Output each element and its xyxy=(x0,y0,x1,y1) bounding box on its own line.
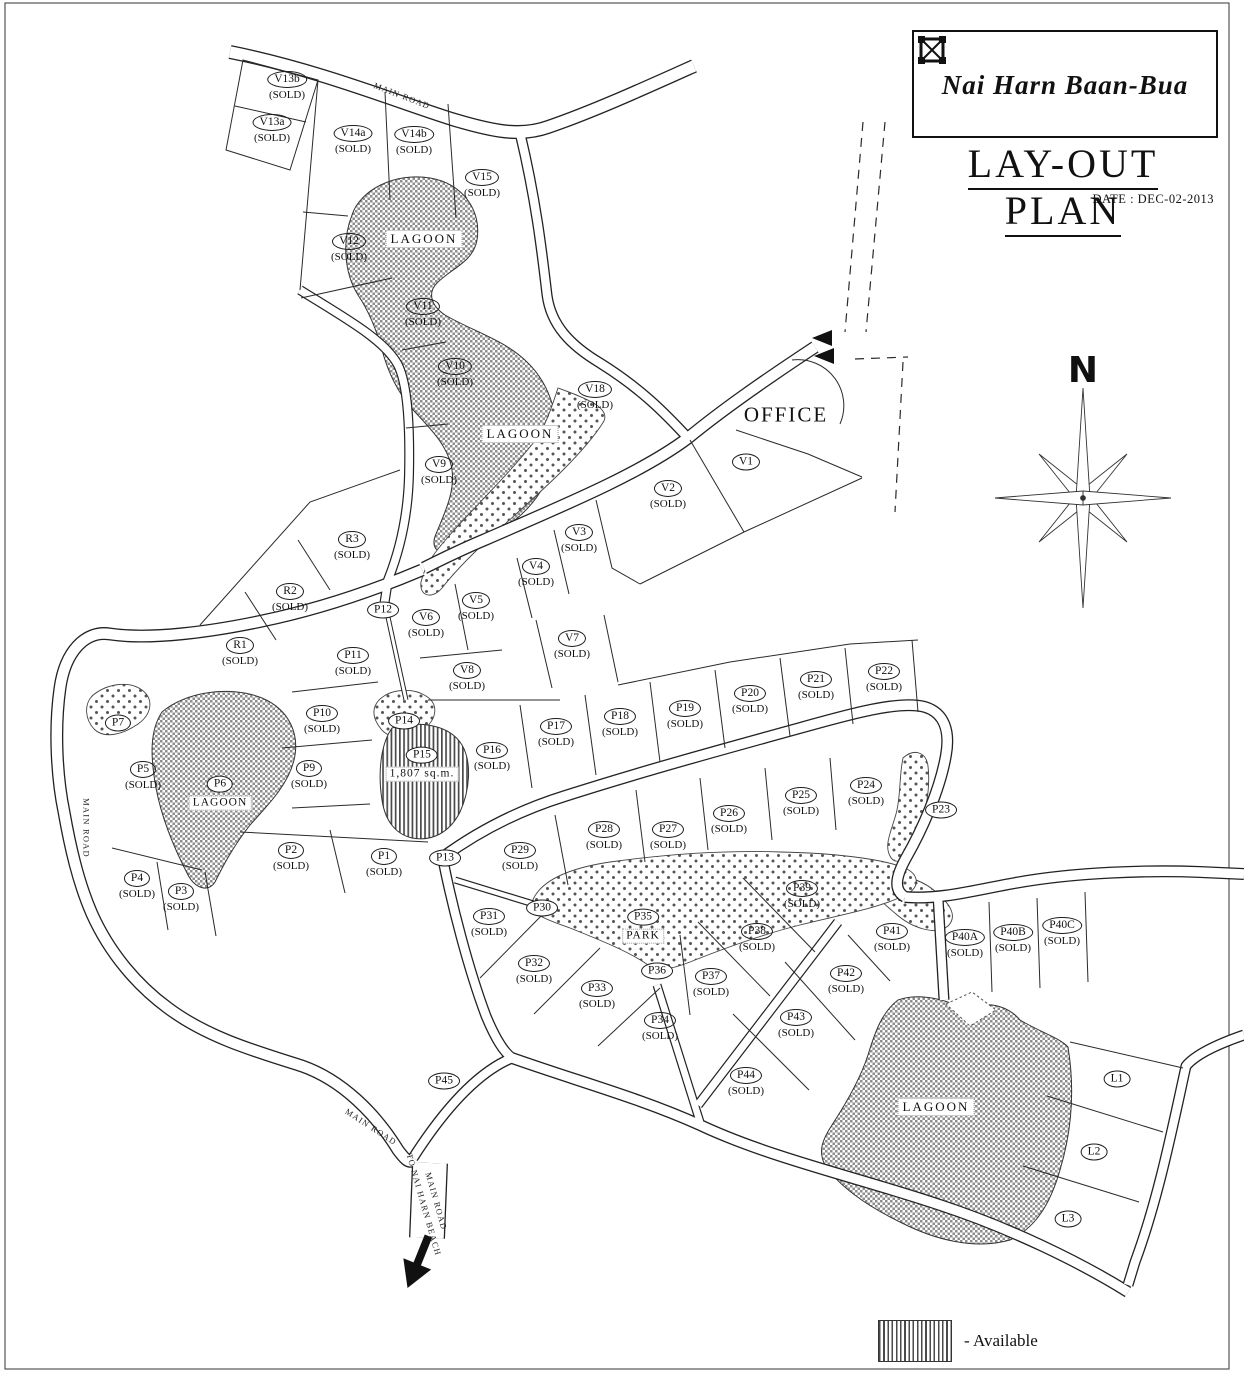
plot-id: P41 xyxy=(876,923,908,940)
area-label-0: LAGOON xyxy=(386,230,463,248)
plot-status: (SOLD) xyxy=(602,726,638,738)
plot-status: (SOLD) xyxy=(449,680,485,692)
page-title: LAY-OUT PLAN xyxy=(968,141,1159,237)
plot-label-P2: P2(SOLD) xyxy=(273,840,309,872)
plot-id: R2 xyxy=(276,583,303,600)
plot-label-P10: P10(SOLD) xyxy=(304,703,340,735)
plot-id: P45 xyxy=(428,1073,460,1090)
plot-status: (SOLD) xyxy=(119,888,155,900)
plot-id: P34 xyxy=(644,1012,676,1029)
plot-id: P21 xyxy=(800,671,832,688)
plot-status: (SOLD) xyxy=(267,89,307,101)
plot-id: P10 xyxy=(306,705,338,722)
plot-status: (SOLD) xyxy=(728,1085,764,1097)
plot-label-V14b: V14b(SOLD) xyxy=(394,124,434,156)
plot-label-V13a: V13a(SOLD) xyxy=(253,112,292,144)
plot-id: P3 xyxy=(168,883,194,900)
plot-label-P33: P33(SOLD) xyxy=(579,978,615,1010)
plot-label-P23: P23 xyxy=(925,800,957,819)
plot-status: (SOLD) xyxy=(304,723,340,735)
plot-status: (SOLD) xyxy=(253,132,292,144)
area-label-1: LAGOON xyxy=(482,425,559,443)
plot-id: P23 xyxy=(925,802,957,819)
plot-id: P6 xyxy=(207,776,233,793)
plot-status: (SOLD) xyxy=(874,941,910,953)
plot-id: P31 xyxy=(473,908,505,925)
plot-label-P22: P22(SOLD) xyxy=(866,661,902,693)
plot-status: (SOLD) xyxy=(538,736,574,748)
plot-label-P15: P151,807 sq.m. xyxy=(386,745,459,782)
plot-status: (SOLD) xyxy=(667,718,703,730)
plot-label-P43: P43(SOLD) xyxy=(778,1007,814,1039)
available-plot-p15 xyxy=(380,724,468,839)
plot-label-V8: V8(SOLD) xyxy=(449,660,485,692)
plot-status: (SOLD) xyxy=(579,998,615,1010)
plot-label-V1: V1 xyxy=(732,452,760,471)
plot-id: P24 xyxy=(850,777,882,794)
plot-status: (SOLD) xyxy=(334,549,370,561)
plot-label-R2: R2(SOLD) xyxy=(272,581,308,613)
plot-status: (SOLD) xyxy=(1042,935,1082,947)
plot-id: V18 xyxy=(578,381,612,398)
plot-id: P40A xyxy=(945,929,985,946)
plot-id: P39 xyxy=(786,880,818,897)
plot-label-V5: V5(SOLD) xyxy=(458,590,494,622)
plot-id: P4 xyxy=(124,870,150,887)
plot-label-P1: P1(SOLD) xyxy=(366,846,402,878)
plot-id: V8 xyxy=(453,662,481,679)
plot-id: V2 xyxy=(654,480,682,497)
plot-label-P45: P45 xyxy=(428,1071,460,1090)
plot-id: V5 xyxy=(462,592,490,609)
plot-status: (SOLD) xyxy=(394,144,434,156)
plot-id: L3 xyxy=(1055,1211,1082,1228)
plot-id: V4 xyxy=(522,558,550,575)
plot-label-V9: V9(SOLD) xyxy=(421,454,457,486)
compass-north-label: N xyxy=(1068,350,1098,391)
plot-status: (SOLD) xyxy=(561,542,597,554)
plot-id: V9 xyxy=(425,456,453,473)
plot-status: (SOLD) xyxy=(518,576,554,588)
plot-id: P18 xyxy=(604,708,636,725)
plot-label-P14: P14 xyxy=(388,711,420,730)
compass-rose-icon xyxy=(995,388,1171,608)
plot-area-label: PARK xyxy=(622,929,664,944)
plot-label-P29: P29(SOLD) xyxy=(502,840,538,872)
plot-id: V13a xyxy=(253,114,292,131)
plot-status: (SOLD) xyxy=(586,839,622,851)
plot-id: P12 xyxy=(367,602,399,619)
legend-available-swatch xyxy=(878,1320,952,1362)
plot-label-P27: P27(SOLD) xyxy=(650,819,686,851)
plot-label-P6: P6LAGOON xyxy=(189,774,252,811)
plot-status: (SOLD) xyxy=(474,760,510,772)
plot-label-V15: V15(SOLD) xyxy=(464,167,500,199)
plot-status: (SOLD) xyxy=(335,665,371,677)
plot-label-P31: P31(SOLD) xyxy=(471,906,507,938)
plot-id: V14b xyxy=(394,126,434,143)
plot-label-V10: V10(SOLD) xyxy=(437,356,473,388)
plot-label-P40A: P40A(SOLD) xyxy=(945,927,985,959)
plot-status: (SOLD) xyxy=(693,986,729,998)
plot-status: (SOLD) xyxy=(163,901,199,913)
plot-label-P5: P5(SOLD) xyxy=(125,759,161,791)
plot-status: (SOLD) xyxy=(366,866,402,878)
plot-id: V3 xyxy=(565,524,593,541)
plot-label-P9: P9(SOLD) xyxy=(291,758,327,790)
plot-status: (SOLD) xyxy=(272,601,308,613)
plot-id: P17 xyxy=(540,718,572,735)
plot-status: (SOLD) xyxy=(421,474,457,486)
plot-label-P35: P35PARK xyxy=(622,907,664,944)
plot-id: V11 xyxy=(406,298,439,315)
plot-id: P14 xyxy=(388,713,420,730)
plot-id: P40B xyxy=(993,924,1033,941)
plot-status: (SOLD) xyxy=(502,860,538,872)
legend: - Available xyxy=(878,1320,1038,1362)
plot-label-V12: V12(SOLD) xyxy=(331,231,367,263)
plot-id: P28 xyxy=(588,821,620,838)
plot-id: P35 xyxy=(627,909,659,926)
plot-status: (SOLD) xyxy=(828,983,864,995)
plot-id: R1 xyxy=(226,637,253,654)
plot-id: P7 xyxy=(105,715,131,732)
plot-id: V12 xyxy=(332,233,366,250)
plot-status: (SOLD) xyxy=(650,839,686,851)
plot-label-P34: P34(SOLD) xyxy=(642,1010,678,1042)
plot-id: P44 xyxy=(730,1067,762,1084)
plot-id: R3 xyxy=(338,531,365,548)
plot-id: L2 xyxy=(1081,1144,1108,1161)
plot-status: (SOLD) xyxy=(650,498,686,510)
layout-plan-page: N Nai Harn Baan-Bua LAY-OUT PLAN DATE : … xyxy=(0,0,1244,1374)
plot-id: P38 xyxy=(741,923,773,940)
plot-id: P33 xyxy=(581,980,613,997)
plot-status: (SOLD) xyxy=(554,648,590,660)
plot-status: (SOLD) xyxy=(331,251,367,263)
brand-box: Nai Harn Baan-Bua xyxy=(912,30,1218,138)
plot-id: P36 xyxy=(641,963,673,980)
plot-id: V14a xyxy=(334,125,373,142)
plot-status: (SOLD) xyxy=(408,627,444,639)
plot-label-P42: P42(SOLD) xyxy=(828,963,864,995)
plot-label-P32: P32(SOLD) xyxy=(516,953,552,985)
plot-label-V18: V18(SOLD) xyxy=(577,379,613,411)
plot-status: (SOLD) xyxy=(125,779,161,791)
plot-label-P12: P12 xyxy=(367,600,399,619)
legend-available-label: - Available xyxy=(964,1331,1038,1351)
road-label-1: MAIN ROAD xyxy=(80,798,93,858)
plot-label-V2: V2(SOLD) xyxy=(650,478,686,510)
plot-label-P13: P13 xyxy=(429,848,461,867)
plot-label-P25: P25(SOLD) xyxy=(783,785,819,817)
plot-label-P18: P18(SOLD) xyxy=(602,706,638,738)
plot-label-P20: P20(SOLD) xyxy=(732,683,768,715)
plot-status: (SOLD) xyxy=(516,973,552,985)
plot-label-L1: L1 xyxy=(1104,1069,1131,1088)
plot-label-L2: L2 xyxy=(1081,1142,1108,1161)
plot-status: (SOLD) xyxy=(334,143,373,155)
plot-label-P39: P39(SOLD) xyxy=(784,878,820,910)
plot-label-P4: P4(SOLD) xyxy=(119,868,155,900)
plot-label-P11: P11(SOLD) xyxy=(335,645,371,677)
plot-area-label: 1,807 sq.m. xyxy=(386,767,459,782)
plot-id: V7 xyxy=(558,630,586,647)
plot-status: (SOLD) xyxy=(291,778,327,790)
plot-status: (SOLD) xyxy=(866,681,902,693)
plot-label-L3: L3 xyxy=(1055,1209,1082,1228)
plot-id: P11 xyxy=(337,647,368,664)
plot-label-P17: P17(SOLD) xyxy=(538,716,574,748)
plot-status: (SOLD) xyxy=(945,947,985,959)
plot-id: P15 xyxy=(406,747,438,764)
brand-logo-icon xyxy=(914,32,950,68)
plot-id: P9 xyxy=(296,760,322,777)
plot-label-P40B: P40B(SOLD) xyxy=(993,922,1033,954)
title-bar: LAY-OUT PLAN xyxy=(912,140,1214,234)
plot-id: P29 xyxy=(504,842,536,859)
plot-label-P44: P44(SOLD) xyxy=(728,1065,764,1097)
plot-status: (SOLD) xyxy=(848,795,884,807)
plot-label-V4: V4(SOLD) xyxy=(518,556,554,588)
plot-id: P2 xyxy=(278,842,304,859)
plot-id: P19 xyxy=(669,700,701,717)
plot-status: (SOLD) xyxy=(783,805,819,817)
plot-id: P16 xyxy=(476,742,508,759)
plot-id: P27 xyxy=(652,821,684,838)
plot-label-P16: P16(SOLD) xyxy=(474,740,510,772)
plot-label-V13b: V13b(SOLD) xyxy=(267,69,307,101)
plot-label-V7: V7(SOLD) xyxy=(554,628,590,660)
plot-status: (SOLD) xyxy=(778,1027,814,1039)
plot-label-P3: P3(SOLD) xyxy=(163,881,199,913)
plot-id: V15 xyxy=(465,169,499,186)
plot-id: V6 xyxy=(412,609,440,626)
plot-id: P37 xyxy=(695,968,727,985)
plot-area-label: LAGOON xyxy=(189,796,252,811)
plot-status: (SOLD) xyxy=(222,655,258,667)
plot-label-P37: P37(SOLD) xyxy=(693,966,729,998)
plot-label-V3: V3(SOLD) xyxy=(561,522,597,554)
plot-status: (SOLD) xyxy=(642,1030,678,1042)
plot-status: (SOLD) xyxy=(784,898,820,910)
plot-status: (SOLD) xyxy=(405,316,441,328)
office-label: OFFICE xyxy=(744,403,828,428)
plot-status: (SOLD) xyxy=(711,823,747,835)
plot-status: (SOLD) xyxy=(464,187,500,199)
plan-date: DATE : DEC-02-2013 xyxy=(912,192,1214,207)
plot-id: L1 xyxy=(1104,1071,1131,1088)
plot-id: P30 xyxy=(526,900,558,917)
plot-id: P40C xyxy=(1042,917,1082,934)
plot-label-P26: P26(SOLD) xyxy=(711,803,747,835)
plot-label-P28: P28(SOLD) xyxy=(586,819,622,851)
brand-name: Nai Harn Baan-Bua xyxy=(942,70,1189,101)
plot-status: (SOLD) xyxy=(471,926,507,938)
plot-label-P38: P38(SOLD) xyxy=(739,921,775,953)
plot-id: P13 xyxy=(429,850,461,867)
plot-id: V13b xyxy=(267,71,307,88)
plot-label-P24: P24(SOLD) xyxy=(848,775,884,807)
dashed-boundaries xyxy=(845,122,908,512)
area-label-2: LAGOON xyxy=(898,1098,975,1116)
plot-id: P32 xyxy=(518,955,550,972)
plot-label-P7: P7 xyxy=(105,713,131,732)
plot-label-P41: P41(SOLD) xyxy=(874,921,910,953)
plot-label-P36: P36 xyxy=(641,961,673,980)
plot-label-V6: V6(SOLD) xyxy=(408,607,444,639)
park-area xyxy=(532,852,916,969)
plot-id: P20 xyxy=(734,685,766,702)
plot-id: P25 xyxy=(785,787,817,804)
plot-id: P42 xyxy=(830,965,862,982)
plot-id: P5 xyxy=(130,761,156,778)
plot-label-P40C: P40C(SOLD) xyxy=(1042,915,1082,947)
plot-id: P1 xyxy=(371,848,397,865)
plot-status: (SOLD) xyxy=(273,860,309,872)
plot-status: (SOLD) xyxy=(577,399,613,411)
plot-label-P30: P30 xyxy=(526,898,558,917)
plot-status: (SOLD) xyxy=(798,689,834,701)
plot-id: P22 xyxy=(868,663,900,680)
plot-label-R3: R3(SOLD) xyxy=(334,529,370,561)
plot-status: (SOLD) xyxy=(993,942,1033,954)
plot-label-V11: V11(SOLD) xyxy=(405,296,441,328)
plot-id: V1 xyxy=(732,454,760,471)
plot-id: P26 xyxy=(713,805,745,822)
plot-status: (SOLD) xyxy=(732,703,768,715)
plot-status: (SOLD) xyxy=(739,941,775,953)
plot-label-P21: P21(SOLD) xyxy=(798,669,834,701)
plot-status: (SOLD) xyxy=(458,610,494,622)
plot-status: (SOLD) xyxy=(437,376,473,388)
plot-label-R1: R1(SOLD) xyxy=(222,635,258,667)
plot-label-P19: P19(SOLD) xyxy=(667,698,703,730)
plot-label-V14a: V14a(SOLD) xyxy=(334,123,373,155)
plot-id: V10 xyxy=(438,358,472,375)
plot-id: P43 xyxy=(780,1009,812,1026)
entrance-gate-icon xyxy=(812,330,834,364)
